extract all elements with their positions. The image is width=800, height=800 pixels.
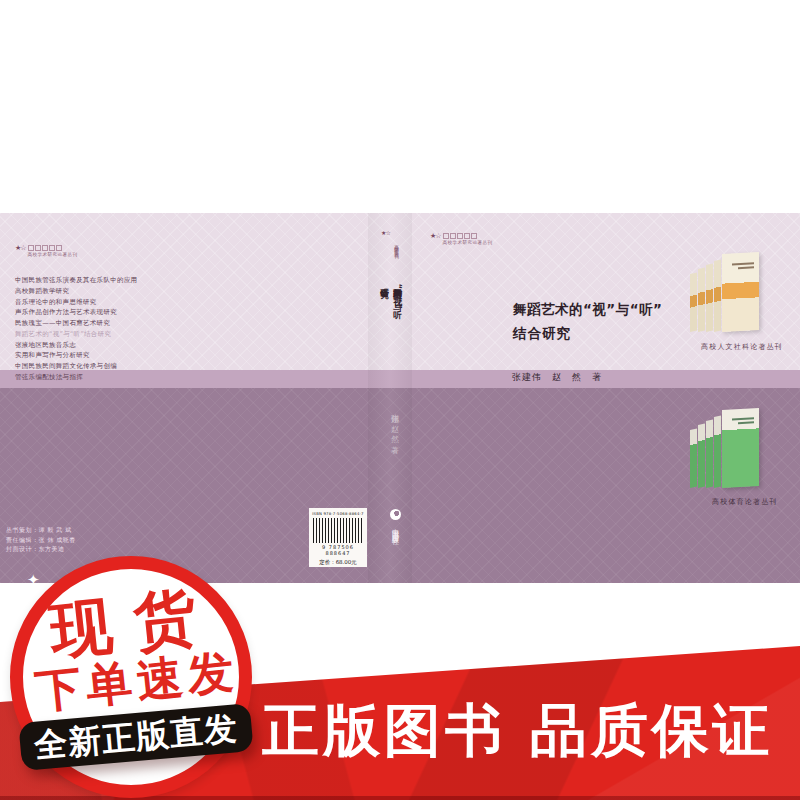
book-title-line2: 结合研究 [513,325,571,343]
book-jacket-spread: ★☆ 高校学术研究论著丛刊 中国民族管弦乐演奏及其在乐队中的应用 高校舞蹈教学研… [0,213,800,583]
logo-boxes-decoration [443,233,493,239]
series-logo-label: 高校学术研究论著丛刊 [443,240,493,245]
list-item: 高校舞蹈教学研究 [15,286,137,297]
star-icon: ★☆ [430,233,441,240]
publisher-name: 中国书籍出版社 [390,523,400,575]
promo-banner-text: 正版图书 品质保证 [262,693,774,770]
barcode-digits: 9 787506 888647 [312,544,364,556]
thumbnail-front-cover [722,408,759,488]
credits-designer: 封面设计：东方美迪 [6,544,76,554]
cover-title-lines [732,262,754,265]
list-item: 中国民族民间舞蹈文化传承与创编 [15,361,137,372]
cover-title-lines [738,266,754,269]
product-image: ★☆ 高校学术研究论著丛刊 中国民族管弦乐演奏及其在乐队中的应用 高校舞蹈教学研… [0,0,800,800]
list-item: 实用和声写作与分析研究 [15,350,137,361]
list-item: 音乐理论中的和声思维研究 [15,297,137,308]
series-logo-label: 高校学术研究论著丛刊 [28,252,78,257]
book-title-line1: 舞蹈艺术的“视”与“听” [513,301,663,319]
star-icon: ★☆ [381,229,390,236]
list-item: 声乐作品创作方法与艺术表现研究 [15,307,137,318]
list-item: 张掖地区民族音乐志 [15,340,137,351]
series-caption: 高校人文社科论著丛刊 [701,342,783,352]
credits-block: 丛书策划：谭 毅 武 斌 责任编辑：张 炜 成晓春 封面设计：东方美迪 [6,525,76,554]
credits-planner: 丛书策划：谭 毅 武 斌 [6,525,76,535]
spine-title: 舞蹈艺术的“视”与“听” 结合研究 [378,281,404,379]
list-item: 中国民族管弦乐演奏及其在乐队中的应用 [15,275,137,286]
sparkle-icon: ✦ [27,571,40,589]
list-item-highlighted: 舞蹈艺术的“视”与“听”结合研究 [15,329,137,340]
series-caption: 高校体育论著丛刊 [712,497,778,507]
list-item: 管弦乐编配技法与指挥 [15,372,137,383]
credits-editor: 责任编辑：张 炜 成晓春 [6,535,76,545]
isbn-text: ISBN 978-7-5068-8864-7 [312,511,364,516]
cover-title-lines [738,421,754,424]
isbn-barcode: ISBN 978-7-5068-8864-7 9 787506 888647 定… [309,508,367,567]
front-cover-series-logo: ★☆ 高校学术研究论著丛刊 [430,233,493,245]
thumbnail-front-cover [722,252,759,332]
series-books-thumbnail-orange [690,254,759,332]
publisher-logo-icon [390,509,401,520]
back-cover-series-logo: ★☆ 高校学术研究论著丛刊 [15,245,78,257]
series-book-list: 中国民族管弦乐演奏及其在乐队中的应用 高校舞蹈教学研究 音乐理论中的和声思维研究… [15,275,137,383]
series-books-thumbnail-green [690,410,759,488]
star-icon: ★☆ [15,245,26,252]
barcode-bars [313,518,363,543]
logo-boxes-decoration [28,245,78,251]
spine-authors: 张建伟 赵 然 著 [388,407,399,493]
list-item: 民族瑰宝——中国石窟艺术研究 [15,318,137,329]
price-label: 定价：68.00元 [312,559,364,566]
cover-title-lines [732,417,754,420]
book-authors: 张建伟 赵 然 著 [512,371,602,384]
publisher-block: 中国书籍出版社 [386,509,404,575]
spine-series-label: 高校学术研究论著丛刊 [394,241,399,281]
